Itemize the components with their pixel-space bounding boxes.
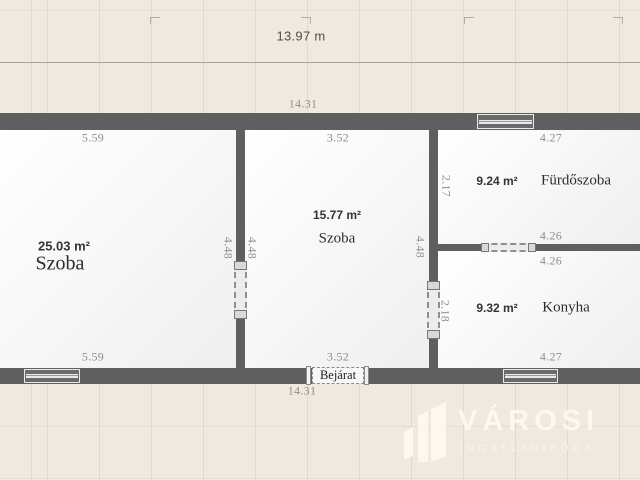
window-szoba-bottom — [24, 369, 80, 383]
dim-furdoszoba-top: 4.27 — [540, 131, 562, 146]
label-konyha: Konyha — [542, 300, 590, 317]
overall-dimension-line — [0, 62, 640, 63]
door-furdoszoba-konyha — [482, 243, 535, 252]
dimension-tick — [150, 17, 160, 24]
brand-tagline: INGATLANIRODA — [460, 443, 595, 453]
dim-konyha-bottom: 4.27 — [540, 350, 562, 365]
door-jamb — [481, 243, 489, 252]
window-pane — [505, 374, 556, 378]
dim-szoba-large-bottom: 5.59 — [82, 350, 104, 365]
area-konyha: 9.32 m² — [476, 301, 517, 315]
dim-szoba-top: 3.52 — [327, 131, 349, 146]
dim-konyha-left: 2.18 — [438, 300, 453, 322]
door-jamb — [234, 261, 247, 270]
entrance-jamb-right — [364, 366, 369, 385]
entrance-door: Bejárat — [312, 367, 364, 384]
dim-konyha-top: 4.26 — [540, 254, 562, 269]
total-width-label: 13.97 m — [276, 29, 325, 44]
dim-width-bottom: 14.31 — [288, 384, 317, 399]
entrance-jamb-left — [306, 366, 311, 385]
dim-szoba-left: 4.48 — [245, 237, 260, 259]
wall-top — [0, 113, 640, 130]
label-szoba: Szoba — [319, 231, 356, 248]
buildings-icon — [404, 400, 452, 464]
area-szoba: 15.77 m² — [313, 208, 361, 222]
dimension-tick — [301, 17, 311, 24]
door-jamb — [427, 330, 440, 339]
dimension-tick — [464, 17, 474, 24]
room-szoba-large-floor — [0, 130, 236, 368]
door-between-szobas — [234, 262, 247, 318]
area-furdoszoba: 9.24 m² — [476, 174, 517, 188]
dimension-tick — [613, 17, 623, 24]
door-jamb — [427, 281, 440, 290]
dim-szoba-bottom: 3.52 — [327, 350, 349, 365]
dim-szoba-large-right: 4.48 — [221, 237, 236, 259]
varosi-watermark: VÁROSI INGATLANIRODA — [400, 398, 625, 464]
area-szoba-large: 25.03 m² — [38, 239, 90, 254]
door-jamb — [528, 243, 536, 252]
window-konyha-bottom — [503, 369, 558, 383]
room-szoba-floor — [245, 130, 429, 368]
label-furdoszoba: Fürdőszoba — [541, 173, 611, 190]
dim-szoba-large-top: 5.59 — [82, 131, 104, 146]
floorplan-image: 13.97 m Bejárat 14.31 14.31 5.59 5.59 — [0, 0, 640, 480]
window-pane — [479, 120, 532, 124]
door-jamb — [234, 310, 247, 319]
dim-szoba-right: 4.48 — [413, 236, 428, 258]
window-bathroom-top — [477, 114, 534, 129]
dim-furdoszoba-left: 2.17 — [439, 175, 454, 197]
window-pane — [26, 374, 78, 378]
dim-furdoszoba-bottom: 4.26 — [540, 229, 562, 244]
dim-width-top: 14.31 — [289, 97, 318, 112]
entrance-label: Bejárat — [320, 368, 356, 383]
label-szoba-large: Szoba — [36, 253, 85, 276]
brand-name: VÁROSI — [458, 405, 599, 438]
wall-bath-kitchen — [438, 244, 640, 251]
